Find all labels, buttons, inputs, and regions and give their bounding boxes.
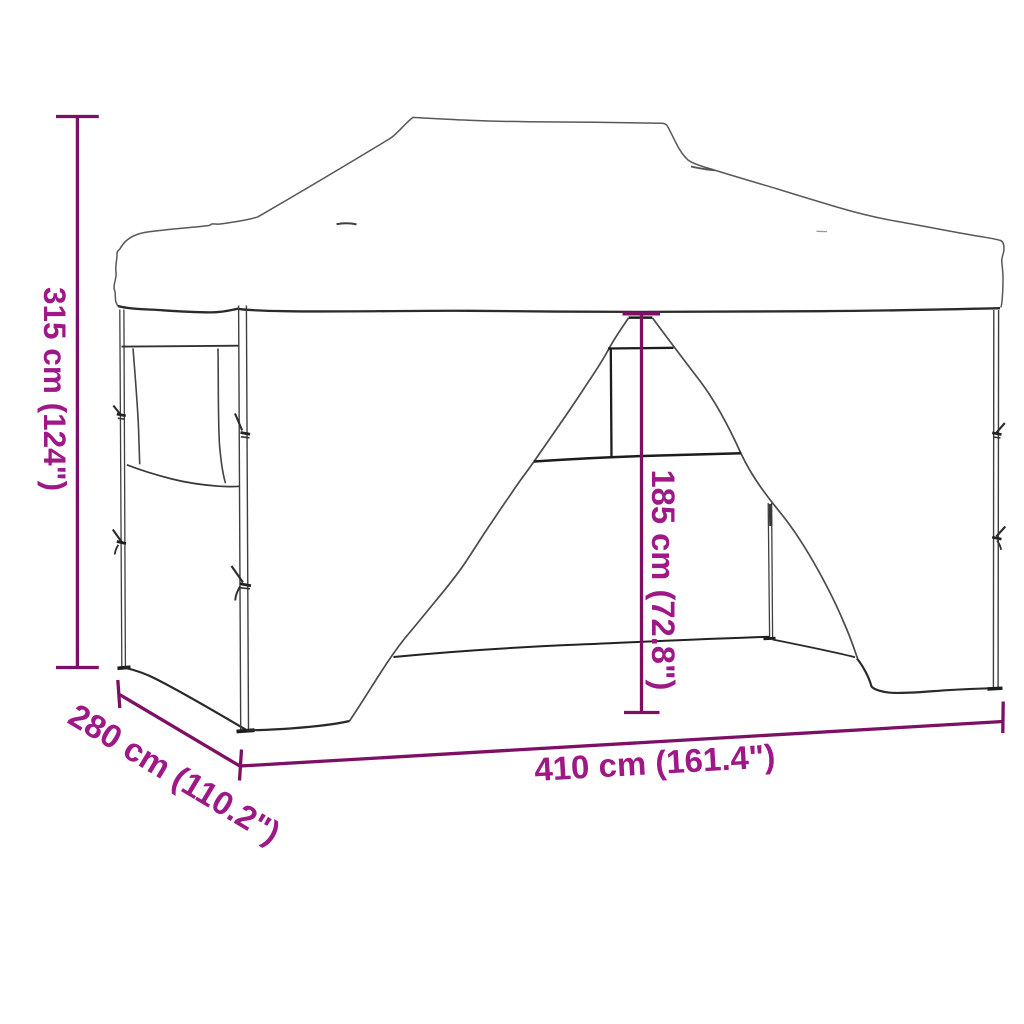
svg-text:185 cm (72.8"): 185 cm (72.8") xyxy=(645,470,682,691)
svg-text:280 cm (110.2"): 280 cm (110.2") xyxy=(62,696,286,851)
svg-text:410 cm (161.4"): 410 cm (161.4") xyxy=(533,737,776,788)
svg-text:315 cm (124"): 315 cm (124") xyxy=(37,287,73,491)
